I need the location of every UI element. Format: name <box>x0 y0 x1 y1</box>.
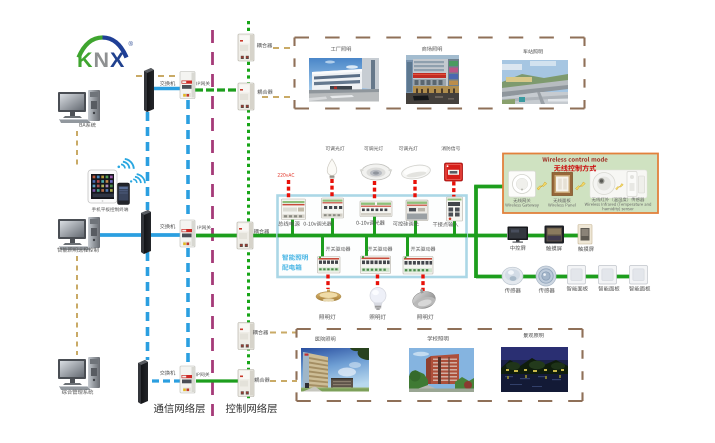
svg-text:X: X <box>110 48 125 72</box>
svg-text:®: ® <box>129 41 134 48</box>
svg-text:N: N <box>94 48 110 72</box>
svg-text:K: K <box>77 48 93 72</box>
